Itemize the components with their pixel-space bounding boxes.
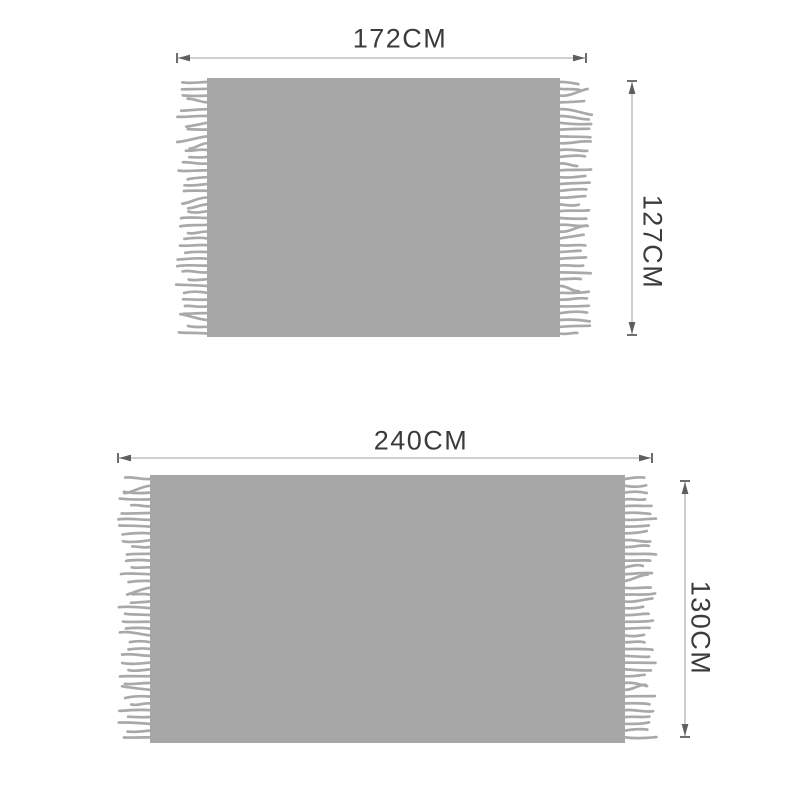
blanket-size-chart: 172CM 127CM 240CM 130CM bbox=[0, 0, 800, 800]
height-dimension-label: 130CM bbox=[685, 581, 716, 676]
fringe-left-icon bbox=[116, 475, 150, 743]
blanket-large-body bbox=[150, 475, 625, 743]
height-dimension-label: 127CM bbox=[637, 195, 668, 290]
fringe-right-icon bbox=[625, 475, 659, 743]
width-dimension-label: 172CM bbox=[353, 24, 448, 55]
fringe-right-icon bbox=[560, 78, 594, 337]
width-dimension-arrow bbox=[176, 51, 587, 65]
fringe-left-icon bbox=[173, 78, 207, 337]
blanket-small-body bbox=[207, 78, 560, 337]
width-dimension-arrow bbox=[117, 451, 653, 465]
